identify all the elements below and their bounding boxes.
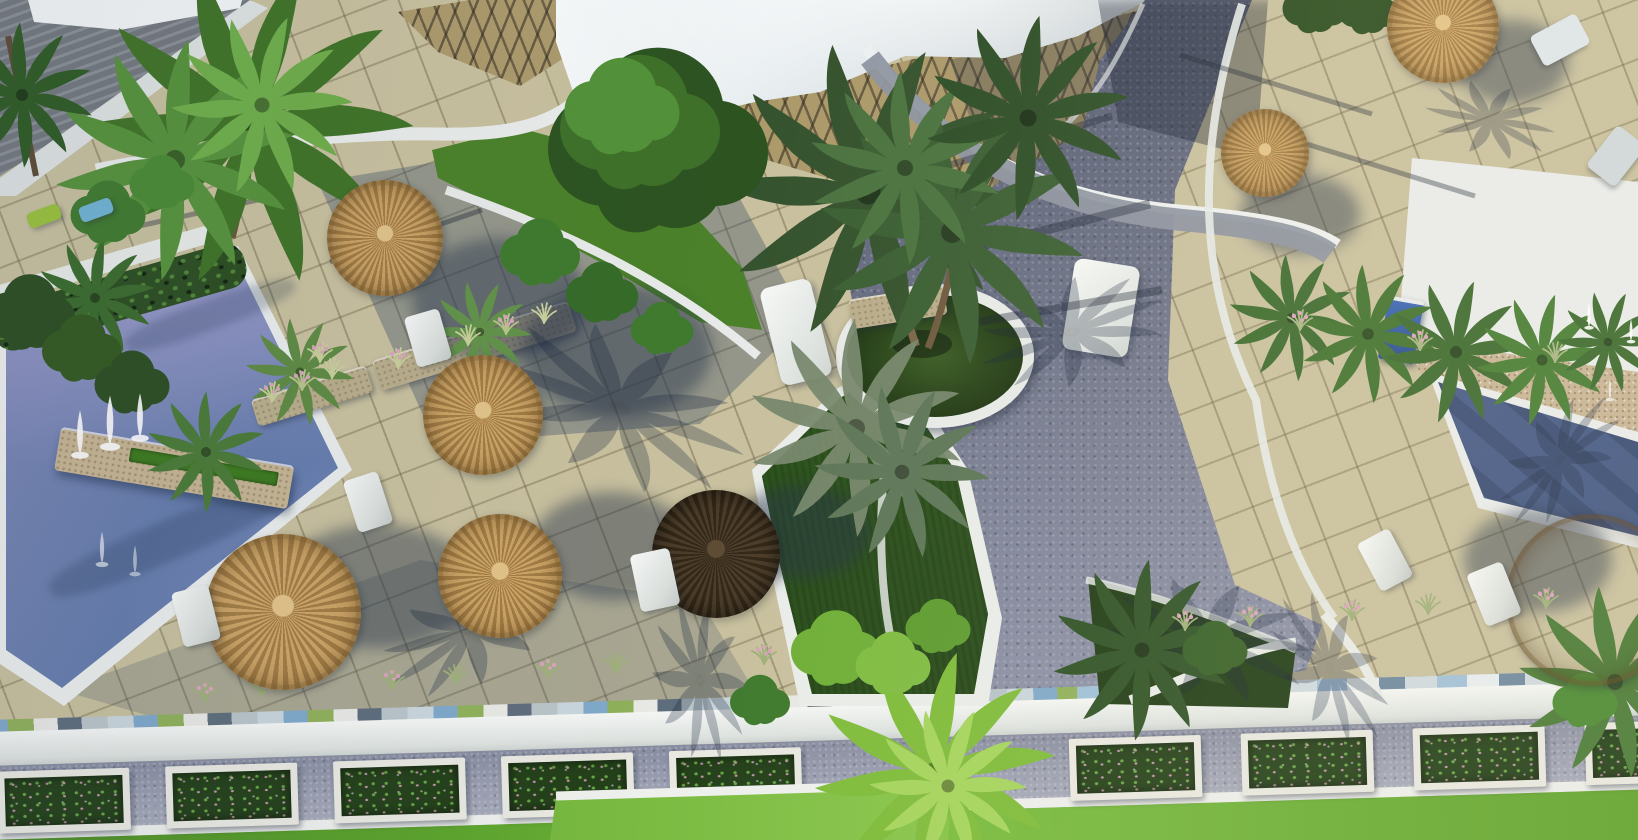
color-grade-overlay <box>0 0 1638 840</box>
resort-aerial-rendering <box>0 0 1638 840</box>
